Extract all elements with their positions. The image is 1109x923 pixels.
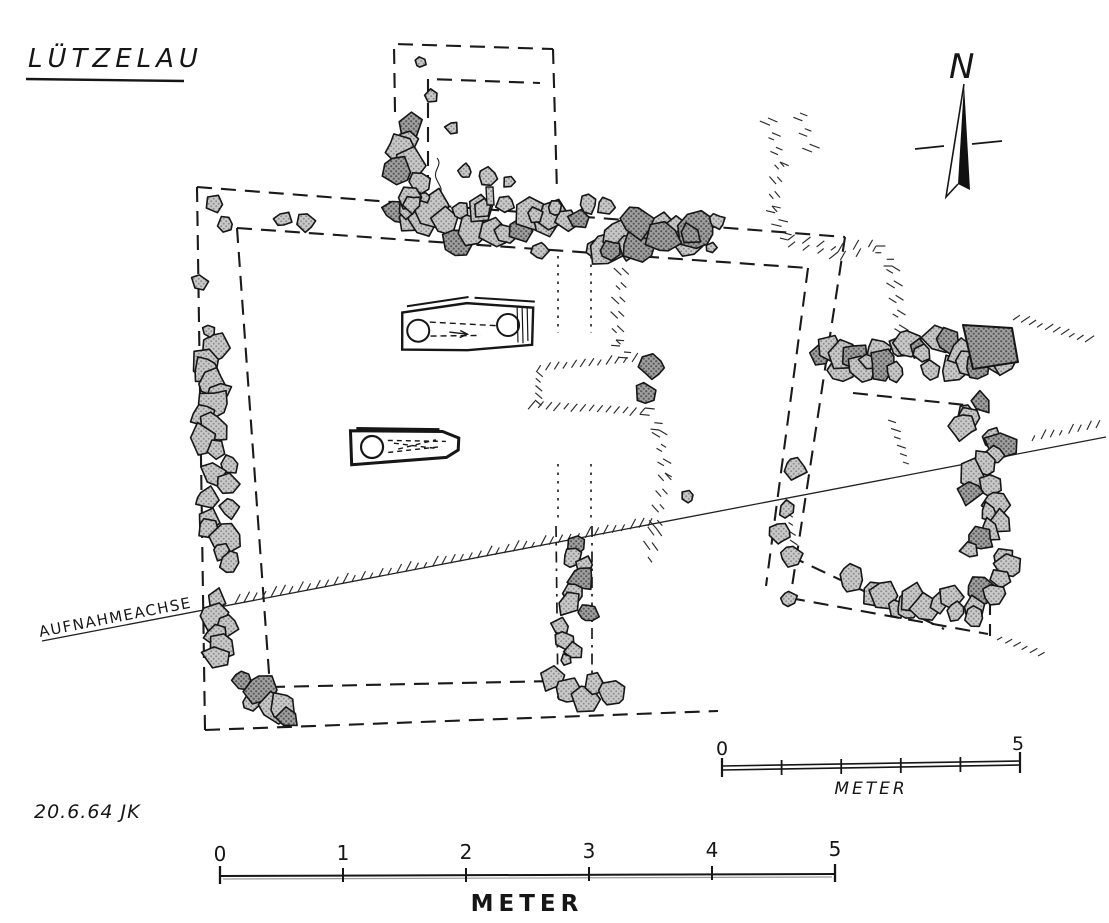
hatch-tick xyxy=(656,528,662,536)
trench-outline-outer-left xyxy=(197,187,205,730)
title-underline xyxy=(26,79,184,81)
hatching xyxy=(235,113,1100,656)
grave-1-hatch xyxy=(516,306,529,344)
hatch-tick xyxy=(652,543,658,551)
hatch-tick xyxy=(611,297,619,304)
hatch-tick xyxy=(768,138,774,140)
scale-bar-main: 0 1 2 3 4 5 METER xyxy=(214,837,842,917)
hatch-tick xyxy=(800,113,807,116)
grave-2-outline xyxy=(350,427,459,465)
hatch-tick xyxy=(895,329,901,332)
hatch-tick xyxy=(840,251,845,260)
hatch-tick xyxy=(644,541,651,550)
hatch-tick xyxy=(1053,327,1061,332)
hatch-tick xyxy=(654,423,662,424)
hatch-tick xyxy=(546,402,552,409)
hatch-tick xyxy=(572,360,577,368)
stone xyxy=(206,195,222,212)
date-signature: 20.6.64 JK xyxy=(34,801,141,823)
hatch-tick xyxy=(768,118,777,122)
hatch-tick xyxy=(1059,430,1062,435)
stone xyxy=(887,361,903,382)
hatch-tick xyxy=(886,283,894,288)
hatch-tick xyxy=(538,402,543,408)
stone xyxy=(561,654,571,665)
annex-outline-right xyxy=(553,49,557,192)
hatch-tick xyxy=(536,386,543,392)
hatch-tick xyxy=(1069,424,1074,434)
hatch-tick xyxy=(617,326,624,332)
hatch-tick xyxy=(769,177,776,185)
grave-1 xyxy=(400,294,538,354)
grave-1-stone-circle xyxy=(496,313,519,336)
stone xyxy=(192,275,209,290)
hatch-tick xyxy=(645,408,655,409)
hatch-tick xyxy=(1029,320,1036,325)
hatch-tick xyxy=(873,246,876,252)
hatch-tick xyxy=(803,245,810,250)
excavation-plan-page: N 0 5 METER 0 1 2 3 4 5 METER LÜTZELAU A… xyxy=(0,0,1109,923)
hatch-tick xyxy=(997,637,1002,640)
stone xyxy=(781,591,798,606)
hatch-tick xyxy=(611,312,618,319)
hatch-tick xyxy=(894,437,901,439)
hatch-tick xyxy=(780,238,788,240)
hatch-tick xyxy=(615,357,619,364)
hatch-tick xyxy=(892,266,900,271)
stone xyxy=(784,458,807,481)
hatch-tick xyxy=(571,404,578,412)
hatch-tick xyxy=(776,147,783,150)
stone xyxy=(599,681,625,705)
hatch-tick xyxy=(614,268,622,275)
north-label: N xyxy=(949,47,974,87)
hatch-tick xyxy=(563,362,567,368)
scale-main-label-3: 3 xyxy=(583,839,596,863)
hatch-tick xyxy=(622,268,629,274)
grave-1-skeleton-dashes xyxy=(430,319,497,338)
hatch-tick xyxy=(775,191,780,197)
hatch-tick xyxy=(802,237,810,243)
scale-main-label-5: 5 xyxy=(829,837,842,861)
east-structure-inner-dash xyxy=(853,393,965,405)
hatch-tick xyxy=(1050,430,1054,438)
stone xyxy=(706,242,717,252)
hatch-tick xyxy=(1085,336,1094,342)
stone xyxy=(504,177,515,188)
hatch-tick xyxy=(616,340,624,341)
scale-small-label-5: 5 xyxy=(1012,733,1024,755)
hatch-tick xyxy=(614,406,620,413)
stone xyxy=(781,546,803,567)
hatch-tick xyxy=(888,420,896,423)
hatch-tick xyxy=(657,448,663,451)
hatch-tick xyxy=(663,459,671,464)
stone xyxy=(549,201,562,215)
hatch-tick xyxy=(652,432,660,437)
grave-2-skeleton-dashes xyxy=(388,438,446,452)
stone xyxy=(382,157,410,185)
graves xyxy=(350,294,537,465)
scale-main-line xyxy=(220,874,835,876)
hatch-tick xyxy=(889,298,897,303)
hatch-tick xyxy=(662,489,667,495)
hatch-tick xyxy=(528,401,535,409)
stone xyxy=(580,194,595,214)
hatch-tick xyxy=(896,295,904,300)
hatch-tick xyxy=(618,311,624,316)
hatch-tick xyxy=(1013,642,1020,646)
stone xyxy=(218,473,241,493)
stone xyxy=(203,325,215,337)
hatch-tick xyxy=(805,129,812,132)
hatch-tick xyxy=(621,282,627,287)
scale-bar-small: 0 5 METER xyxy=(716,733,1024,799)
hatch-tick xyxy=(660,504,664,509)
stone xyxy=(840,564,862,592)
annex-outline-outer xyxy=(394,44,553,112)
hatch-tick xyxy=(564,403,569,409)
scale-main-label-0: 0 xyxy=(214,842,227,866)
hatch-tick xyxy=(893,314,899,317)
hatch-tick xyxy=(536,371,543,377)
north-arrow-blade xyxy=(958,84,970,190)
stone xyxy=(559,592,579,615)
scale-small-unit: METER xyxy=(834,779,907,799)
hatch-tick xyxy=(769,194,773,199)
hatch-tick xyxy=(611,345,620,346)
stone xyxy=(273,212,292,225)
stone xyxy=(201,647,229,668)
hatch-tick xyxy=(537,365,541,371)
hatch-tick xyxy=(766,211,775,213)
hatch-tick xyxy=(598,360,602,366)
stone xyxy=(780,500,794,518)
hatch-tick xyxy=(658,475,664,481)
hatch-tick xyxy=(831,247,836,251)
grave-1-skull xyxy=(407,319,430,342)
hatch-tick xyxy=(790,540,797,545)
hatch-tick xyxy=(656,491,662,497)
hatch-tick xyxy=(630,408,637,416)
hatch-tick xyxy=(770,151,778,154)
scale-main-label-4: 4 xyxy=(706,838,719,862)
hatch-tick xyxy=(818,249,824,254)
hatch-tick xyxy=(244,592,250,603)
hatch-tick xyxy=(887,269,893,273)
hatch-tick xyxy=(1077,335,1084,340)
hatch-tick xyxy=(1078,425,1082,432)
hatch-tick xyxy=(651,429,660,430)
page-title: LÜTZELAU xyxy=(28,42,203,74)
hatch-tick xyxy=(616,286,620,290)
hatch-tick xyxy=(623,407,628,413)
stone xyxy=(948,415,976,441)
site-plan-figure: N 0 5 METER 0 1 2 3 4 5 METER LÜTZELAU A… xyxy=(0,0,1109,923)
hatch-tick xyxy=(777,177,782,182)
hatch-tick xyxy=(597,405,603,412)
stone xyxy=(531,243,549,259)
hatch-tick xyxy=(810,144,820,148)
hatch-tick xyxy=(868,240,872,247)
hatch-tick xyxy=(760,121,770,125)
stone xyxy=(963,325,1018,369)
hatch-tick xyxy=(775,165,779,170)
hatch-tick xyxy=(1005,639,1012,643)
plan-boundaries xyxy=(197,44,990,730)
hatch-tick xyxy=(1021,316,1030,322)
north-arrow: N xyxy=(915,47,1002,197)
hatch-tick xyxy=(853,240,859,250)
scale-main-unit: METER xyxy=(471,891,584,917)
stone xyxy=(637,383,656,404)
hatch-tick xyxy=(899,325,909,331)
hatch-tick xyxy=(778,220,788,222)
stone xyxy=(578,605,599,621)
stone-walls xyxy=(191,57,1021,726)
hatch-tick xyxy=(897,310,905,315)
hatch-tick xyxy=(1037,324,1043,328)
grave-1-outline xyxy=(400,300,535,354)
hatch-tick xyxy=(1022,646,1028,649)
hatch-tick xyxy=(535,393,542,399)
hatch-tick xyxy=(788,242,795,248)
hatch-tick xyxy=(606,355,612,364)
scale-small-label-0: 0 xyxy=(716,738,728,760)
stone xyxy=(479,167,497,186)
trench-outline-outer-right xyxy=(790,237,845,600)
stone xyxy=(297,214,316,233)
hatch-tick xyxy=(1032,435,1035,441)
survey-axis-label: AUFNAHMEACHSE xyxy=(37,594,193,641)
stone xyxy=(682,491,693,503)
scale-main-line-shadow xyxy=(223,877,832,879)
hatch-tick xyxy=(903,462,909,464)
hatch-tick xyxy=(772,133,781,137)
hatch-tick xyxy=(554,362,559,370)
trench-outline-inner-bottom xyxy=(270,681,556,687)
stone xyxy=(638,354,664,380)
hatch-tick xyxy=(1096,420,1100,428)
hatch-tick xyxy=(789,523,793,526)
hatch-tick xyxy=(606,406,611,413)
hatch-tick xyxy=(1013,315,1020,320)
stone xyxy=(425,89,437,102)
hatch-tick xyxy=(658,462,665,466)
hatch-tick xyxy=(771,224,781,226)
hatch-tick xyxy=(580,359,585,367)
hatch-tick xyxy=(580,404,586,411)
stone xyxy=(598,197,616,214)
hatch-tick xyxy=(620,297,626,302)
stone xyxy=(965,606,983,627)
hatch-tick xyxy=(1045,324,1053,330)
hatch-tick xyxy=(817,241,825,247)
hatch-tick xyxy=(1087,421,1092,430)
hatch-tick xyxy=(1041,430,1046,440)
hatch-tick xyxy=(891,428,901,431)
north-arrow-crossbar xyxy=(915,141,1002,149)
hatch-tick xyxy=(652,505,659,513)
stone xyxy=(218,217,233,233)
hatch-tick xyxy=(632,353,638,362)
stone xyxy=(415,57,426,67)
hatch-tick xyxy=(640,408,645,414)
hatch-tick xyxy=(648,527,654,536)
hatch-tick xyxy=(659,430,667,435)
hatch-tick xyxy=(793,117,802,121)
hatch-tick xyxy=(648,557,652,562)
hatch-tick xyxy=(829,252,838,259)
scale-main-label-1: 1 xyxy=(337,841,350,865)
grave-2-skull xyxy=(361,436,384,459)
hatch-tick xyxy=(1061,329,1069,335)
hatch-tick xyxy=(589,358,594,366)
stone xyxy=(445,122,458,133)
hatch-tick xyxy=(1030,648,1038,652)
grave-2 xyxy=(350,425,459,465)
hatch-tick xyxy=(661,444,666,447)
labels: LÜTZELAU AUFNAHMEACHSE 20.6.64 JK xyxy=(26,42,203,823)
stone xyxy=(486,187,494,205)
hatch-tick xyxy=(612,328,617,332)
hatch-tick xyxy=(640,414,650,415)
hatch-tick xyxy=(802,148,812,152)
hatch-tick xyxy=(1038,652,1045,656)
hatch-tick xyxy=(553,403,560,411)
hatch-tick xyxy=(894,281,903,286)
stone xyxy=(196,486,219,508)
hatch-tick xyxy=(785,233,792,235)
hatch-tick xyxy=(536,378,541,382)
hatch-tick xyxy=(788,235,795,240)
hatch-tick xyxy=(1069,333,1075,337)
grave-1-arrow-mark xyxy=(449,330,467,338)
stone xyxy=(219,499,240,520)
stone xyxy=(921,360,940,380)
hatch-tick xyxy=(856,248,861,257)
hatch-tick xyxy=(546,362,551,370)
hatch-tick xyxy=(624,352,631,353)
hatch-tick xyxy=(589,405,594,411)
stone xyxy=(452,203,468,219)
trench-outline-inner-left xyxy=(237,228,270,687)
hatch-tick xyxy=(900,454,907,456)
stone xyxy=(458,163,471,177)
hatch-tick xyxy=(897,445,906,448)
hatch-tick xyxy=(799,133,807,136)
scale-main-label-2: 2 xyxy=(460,840,473,864)
stone xyxy=(959,542,977,557)
